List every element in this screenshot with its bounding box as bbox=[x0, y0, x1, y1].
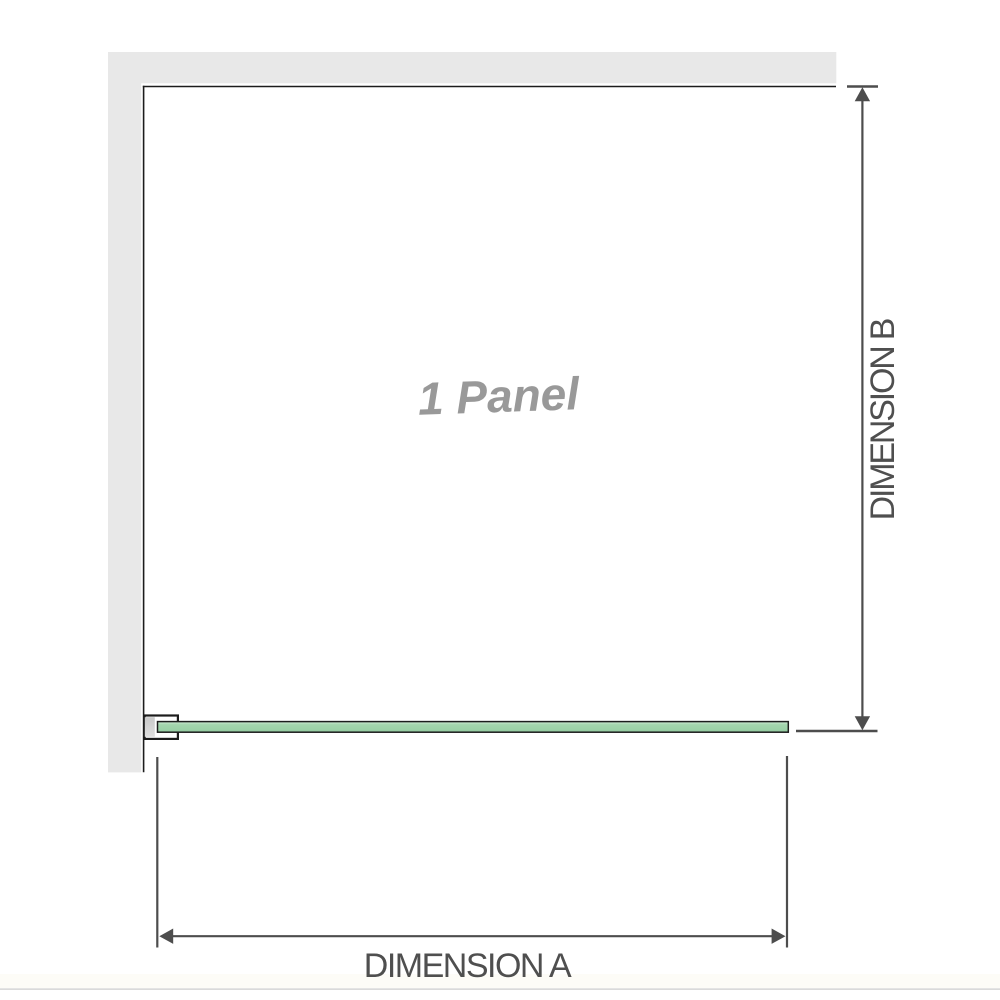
svg-text:DIMENSION B: DIMENSION B bbox=[864, 319, 902, 520]
svg-text:1 Panel: 1 Panel bbox=[417, 367, 581, 425]
svg-text:DIMENSION A: DIMENSION A bbox=[364, 947, 572, 985]
